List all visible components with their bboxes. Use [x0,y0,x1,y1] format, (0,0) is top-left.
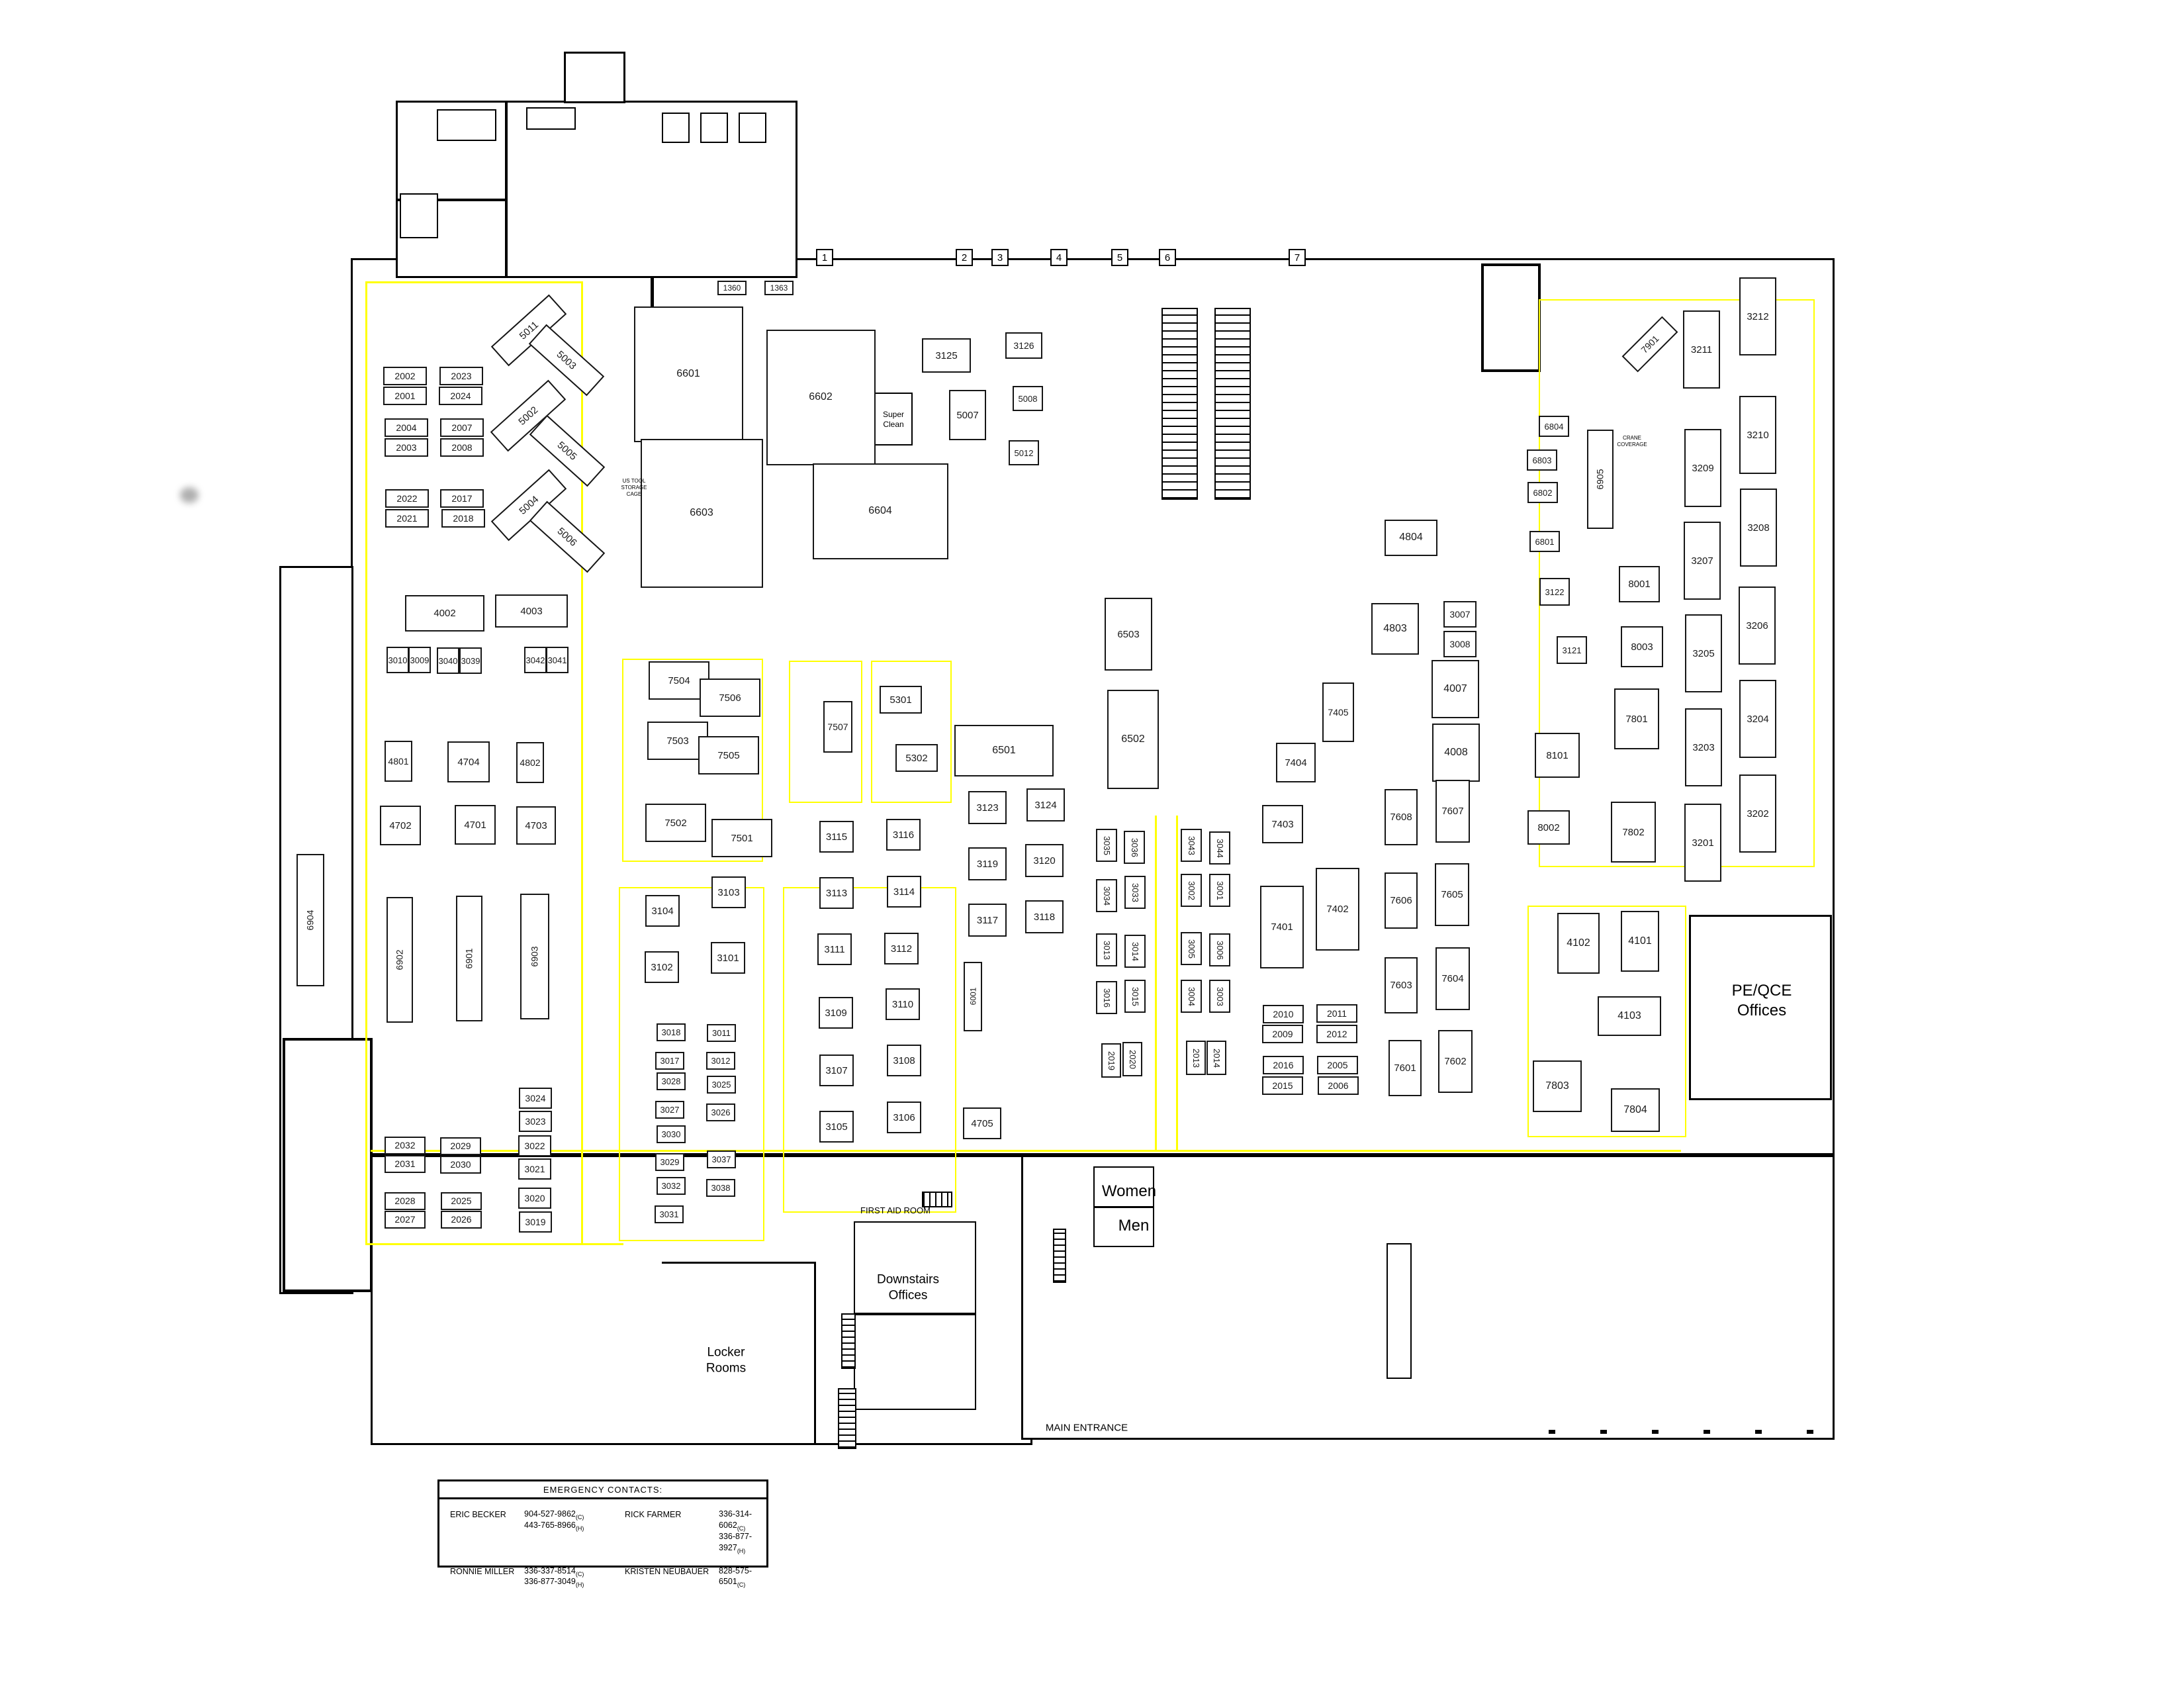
machine-2007: 2007 [440,418,484,437]
machine-3114: 3114 [887,876,921,908]
mezzanine-equipment [700,113,728,143]
aisle-line [1155,816,1157,1150]
machine-7505: 7505 [698,736,759,774]
machine-number: 4705 [971,1119,993,1129]
grid-column-3: 3 [991,249,1009,266]
machine-5301: 5301 [880,686,922,714]
grid-column-7: 7 [1289,249,1306,266]
machine-3204: 3204 [1739,680,1776,758]
machine-number: 3027 [660,1105,680,1114]
machine-number: 3110 [892,1000,913,1009]
machine-number: 5006 [556,526,579,547]
machine-number: 7901 [1639,334,1661,355]
machine-number: 8101 [1546,751,1568,761]
machine-2006: 2006 [1318,1076,1359,1095]
machine-number: 3209 [1692,463,1713,473]
machine-number: 3201 [1692,838,1713,848]
machine-number: 2017 [451,494,472,503]
machine-number: 3007 [1449,610,1470,619]
machine-number: 2028 [394,1196,415,1205]
machine-number: 3206 [1746,621,1768,631]
machine-6802: 6802 [1527,482,1558,503]
machine-3120: 3120 [1025,844,1064,877]
machine-4002: 4002 [405,595,484,632]
machine-number: 2002 [394,371,415,381]
machine-3019: 3019 [519,1211,552,1233]
emergency-contacts-table: ERIC BECKER904-527-9862(C)443-765-8966(H… [439,1499,766,1591]
machine-number: 3112 [891,944,912,954]
grid-column-number: 1 [822,252,827,263]
machine-number: 2022 [396,494,417,503]
wall-shipping-room [283,1038,373,1292]
machine-number: 5012 [1015,449,1034,457]
machine-number: 4007 [1443,684,1467,694]
machine-number: 3004 [1187,987,1196,1006]
machine-4003: 4003 [495,594,568,628]
machine-number: 5301 [889,695,911,705]
machine-number: 3109 [825,1008,846,1018]
machine-4007: 4007 [1432,660,1479,718]
machine-3206: 3206 [1739,586,1776,665]
machine-2028: 2028 [385,1192,426,1210]
storage-rack [1161,308,1198,500]
machine-3117: 3117 [968,904,1007,937]
machine-number: 7603 [1390,980,1412,990]
machine-number: 7401 [1271,922,1293,932]
machine-number: 3106 [893,1113,915,1123]
machine-3008: 3008 [1443,631,1477,657]
machine-3005: 3005 [1181,932,1202,965]
machine-number: 6802 [1533,489,1553,497]
grid-column-6: 6 [1159,249,1176,266]
machine-number: 3030 [662,1130,681,1139]
machine-3113: 3113 [819,877,854,909]
machine-number: 4003 [520,606,542,616]
machine-number: 2016 [1273,1060,1293,1070]
machine-3037: 3037 [707,1150,736,1168]
machine-7606: 7606 [1385,872,1418,929]
aisle-line [365,281,367,1244]
machine-number: 6804 [1545,422,1564,431]
machine-number: 7501 [731,833,752,843]
mezzanine-equipment [400,193,438,238]
machine-number: 3118 [1034,912,1055,922]
machine-2001: 2001 [383,387,427,405]
machine-number: 6604 [868,506,892,516]
machine-6501: 6501 [954,725,1054,776]
machine-2020: 2020 [1122,1042,1142,1076]
label-downstairs-offices: Downstairs Offices [877,1272,939,1303]
machine-3211: 3211 [1683,310,1720,389]
label-pe-qce-offices: PE/QCE Offices [1732,981,1792,1021]
machine-5008: 5008 [1013,386,1043,411]
machine-number: 3117 [977,915,998,925]
machine-2031: 2031 [385,1155,426,1173]
phone-type-tag: (H) [576,1525,584,1532]
machine-7608: 7608 [1385,789,1418,845]
phone-number: 828-575-6501 [719,1566,752,1587]
machine-3013: 3013 [1096,933,1117,966]
aisle-line [1176,816,1178,1150]
phone-number: 904-527-9862 [524,1509,576,1519]
contact-name: RONNIE MILLER [450,1566,524,1588]
machine-3015: 3015 [1124,980,1146,1013]
machine-number: 3033 [1131,883,1140,902]
machine-number: 3122 [1545,588,1565,596]
machine-3105: 3105 [819,1111,854,1143]
machine-6903: 6903 [520,894,549,1019]
machine-number: 6601 [676,369,700,379]
machine-6602: 6602 [766,330,876,465]
machine-3109: 3109 [819,997,853,1029]
machine-1363: 1363 [764,281,794,295]
downstairs-office-room [854,1314,976,1410]
machine-3041: 3041 [546,647,569,673]
machine-number: 7506 [719,693,741,703]
machine-number: 7605 [1441,890,1463,900]
machine-3004: 3004 [1181,980,1202,1013]
machine-number: 3011 [712,1029,731,1037]
aisle-line [365,281,581,283]
machine-number: 2030 [450,1160,471,1169]
machine-3043: 3043 [1181,829,1202,862]
phone-number: 336-314-6062 [719,1509,752,1530]
machine-number: 5003 [555,349,578,371]
machine-6804: 6804 [1539,416,1569,437]
machine-number: 7606 [1390,896,1412,906]
machine-number: 6803 [1533,456,1552,465]
machine-number: 3037 [712,1155,731,1164]
mezzanine-divider-wall [505,101,508,278]
machine-number: 7405 [1328,708,1348,717]
machine-number: 6502 [1121,734,1145,745]
machine-number: 3204 [1747,714,1768,724]
machine-number: 8003 [1631,642,1653,652]
machine-3006: 3006 [1209,933,1230,966]
machine-6502: 6502 [1107,690,1159,789]
machine-number: 3001 [1216,881,1224,900]
machine-number: 3031 [660,1210,679,1219]
machine-3106: 3106 [887,1102,921,1133]
machine-number: 2029 [450,1141,471,1150]
machine-number: 3203 [1692,743,1714,753]
machine-3031: 3031 [655,1205,684,1223]
machine-number: 3014 [1131,942,1140,961]
machine-number: 5007 [956,410,978,420]
machine-6904: 6904 [296,854,324,986]
machine-3101: 3101 [711,942,745,974]
machine-number: 3042 [526,656,545,665]
machine-3122: 3122 [1539,578,1570,606]
machine-number: 2023 [451,371,471,381]
aisle-line [365,1243,623,1245]
machine-6503: 6503 [1105,598,1152,671]
machine-number: 3044 [1216,839,1224,858]
machine-3007: 3007 [1443,601,1477,628]
machine-number: 2014 [1212,1049,1221,1068]
machine-number: 3208 [1747,523,1769,533]
machine-2010: 2010 [1263,1005,1304,1023]
phone-number: 336-337-8514 [524,1566,576,1575]
emergency-contacts-box: EMERGENCY CONTACTS: ERIC BECKER904-527-9… [437,1479,768,1568]
machine-number: 3015 [1131,987,1140,1006]
machine-number: 3012 [711,1056,731,1065]
machine-7401: 7401 [1260,886,1304,968]
machine-number: 6603 [690,508,713,518]
machine-number: 3008 [1449,639,1470,649]
machine-number: 5005 [556,440,579,461]
stairs [841,1313,856,1369]
machine-7605: 7605 [1435,863,1469,926]
machine-number: 6903 [530,946,539,966]
machine-number: 2031 [394,1159,415,1168]
machine-number: 7502 [664,818,686,828]
machine-number: 2007 [451,423,472,432]
machine-number: 3006 [1216,941,1224,960]
machine-7601: 7601 [1388,1040,1422,1096]
phone-number: 336-877-3927 [719,1532,752,1552]
machine-number: 7402 [1326,904,1348,914]
machine-number: 3114 [893,887,915,897]
machine-3022: 3022 [518,1135,551,1156]
machine-7803: 7803 [1533,1060,1582,1112]
machine-number: 2015 [1272,1081,1293,1090]
machine-3125: 3125 [922,338,971,373]
machine-number: 3035 [1103,836,1111,855]
machine-number: 3024 [525,1094,545,1103]
machine-4703: 4703 [516,806,556,845]
machine-4801: 4801 [385,741,412,782]
machine-number: 2004 [396,423,416,432]
machine-3011: 3011 [707,1024,736,1042]
machine-number: 8001 [1628,579,1650,589]
machine-3032: 3032 [657,1177,686,1195]
grid-column-number: 5 [1117,252,1122,263]
machine-7802: 7802 [1611,802,1656,863]
machine-number: 4101 [1628,936,1652,947]
phone-type-tag: (C) [737,1525,746,1532]
contact-name: ERIC BECKER [450,1509,524,1554]
machine-number: 3101 [717,953,739,963]
machine-number: 7802 [1622,827,1644,837]
grid-column-1: 1 [816,249,833,266]
machine-number: 3005 [1187,939,1196,959]
machine-4804: 4804 [1385,520,1437,556]
machine-number: 2013 [1192,1049,1201,1068]
machine-number: 2009 [1272,1029,1293,1039]
machine-number: 2006 [1328,1081,1348,1090]
machine-5302: 5302 [895,744,938,772]
storage-rack [1214,308,1251,500]
machine-6603: 6603 [641,439,763,588]
machine-number: 3043 [1187,836,1196,855]
aisle-zone [871,661,952,803]
machine-number: 3018 [662,1028,681,1037]
contact-name: KRISTEN NEUBAUER [625,1566,719,1588]
machine-number: 3020 [524,1194,545,1203]
grid-column-number: 2 [962,252,967,263]
machine-2002: 2002 [383,367,427,385]
machine-3026: 3026 [706,1103,735,1121]
phone-type-tag: (C) [737,1581,746,1588]
machine-3115: 3115 [819,821,854,853]
machine-number: 3207 [1691,556,1713,566]
machine-number: 2012 [1326,1029,1347,1039]
machine-number: 7602 [1444,1056,1466,1066]
machine-number: 3013 [1103,941,1111,960]
machine-number: 3211 [1691,345,1712,355]
machine-2027: 2027 [385,1211,426,1229]
machine-3035: 3035 [1096,829,1117,862]
contact-phones: 336-314-6062(C)336-877-3927(H) [719,1509,761,1554]
grid-column-5: 5 [1111,249,1128,266]
machine-number: 7403 [1271,820,1293,829]
aisle-line [371,1150,1681,1152]
machine-3002: 3002 [1181,874,1202,907]
entrance-counter [1387,1243,1412,1379]
label-us-tool-storage-cage: US TOOL STORAGE CAGE [621,478,647,498]
machine-number: 3210 [1747,430,1768,440]
machine-3116: 3116 [886,819,921,851]
machine-2029: 2029 [440,1137,481,1155]
machine-3209: 3209 [1684,429,1721,507]
machine-number: 2008 [451,443,472,452]
machine-number: 3034 [1103,886,1111,906]
machine-number: 7601 [1394,1063,1416,1073]
machine-3042: 3042 [524,647,547,673]
machine-number: 4703 [525,821,547,831]
machine-3210: 3210 [1739,396,1776,474]
machine-3016: 3016 [1096,981,1117,1014]
machine-number: 3103 [717,888,739,898]
contact-phones: 336-337-8514(C)336-877-3049(H) [524,1566,625,1588]
machine-2012: 2012 [1316,1025,1357,1043]
machine-3126: 3126 [1005,332,1042,359]
machine-number: 6001 [969,988,977,1006]
machine-number: 3019 [525,1217,545,1227]
machine-number: 4803 [1383,624,1407,634]
machine-6902: 6902 [387,897,413,1023]
machine-number: 3002 [1187,881,1196,900]
machine-number: 3041 [548,656,567,665]
machine-number: 3121 [1563,646,1582,655]
machine-3021: 3021 [518,1158,551,1180]
machine-4704: 4704 [447,741,490,782]
machine-7501: 7501 [711,819,772,857]
machine-6001: 6001 [964,962,982,1031]
machine-number: 2027 [394,1215,415,1224]
machine-number: 7607 [1441,806,1463,816]
machine-3201: 3201 [1684,804,1721,882]
phone-type-tag: (H) [576,1581,584,1588]
phone-type-tag: (C) [576,1571,584,1577]
machine-8003: 8003 [1621,626,1663,667]
machine-7506: 7506 [700,679,760,717]
mezzanine-equipment [662,113,690,143]
aisle-zone [783,887,956,1213]
machine-3104: 3104 [645,895,680,927]
machine-3010: 3010 [387,647,409,673]
machine-number: 3107 [825,1066,847,1076]
stairs [1053,1229,1066,1283]
machine-2005: 2005 [1317,1056,1358,1074]
machine-2008: 2008 [440,438,484,457]
machine-number: 3039 [461,657,480,665]
machine-6801: 6801 [1529,531,1560,552]
machine-4702: 4702 [380,806,421,845]
machine-number: 3025 [712,1080,731,1089]
machine-2032: 2032 [385,1137,426,1154]
machine-2030: 2030 [440,1156,481,1174]
machine-number: 8002 [1537,823,1559,833]
machine-5007: 5007 [949,390,986,440]
machine-number: 3036 [1130,838,1139,857]
machine-number: 6501 [992,745,1016,756]
machine-number: 6602 [809,392,833,402]
grid-column-4: 4 [1050,249,1068,266]
machine-number: 3126 [1013,341,1034,350]
machine-3033: 3033 [1124,876,1146,909]
machine-7405: 7405 [1322,682,1354,742]
machine-number: 3108 [893,1056,915,1066]
machine-3036: 3036 [1124,831,1145,864]
facility-floor-plan: 1234567 20022001200420032022202120232024… [0,0,2184,1688]
machine-7604: 7604 [1435,947,1470,1010]
machine-2025: 2025 [441,1192,482,1210]
label-main-entrance: MAIN ENTRANCE [1046,1423,1128,1435]
machine-2004: 2004 [385,418,428,437]
emergency-contacts-title: EMERGENCY CONTACTS: [439,1481,766,1499]
machine-8101: 8101 [1535,733,1580,778]
machine-3202: 3202 [1739,774,1776,853]
machine-3111: 3111 [817,933,852,965]
machine-number: 4002 [433,608,455,618]
locker-room-wall [814,1262,816,1445]
machine-number: 3029 [660,1158,680,1166]
machine-4701: 4701 [455,805,496,845]
machine-3040: 3040 [437,647,459,674]
machine-3017: 3017 [655,1052,684,1070]
machine-number: 7803 [1545,1081,1569,1092]
machine-number: 3212 [1747,312,1768,322]
grid-column-number: 6 [1165,252,1170,263]
machine-3207: 3207 [1684,522,1721,600]
machine-number: 3125 [935,351,957,361]
machine-2015: 2015 [1262,1076,1303,1095]
grid-column-number: 4 [1056,252,1062,263]
machine-3124: 3124 [1026,788,1065,821]
wall-dock-structure [1481,263,1541,372]
aisle-line [581,281,583,1244]
machine-4103: 4103 [1598,996,1661,1036]
machine-7607: 7607 [1435,780,1470,843]
machine-number: 2003 [396,443,416,452]
machine-2014: 2014 [1206,1041,1226,1075]
machine-3027: 3027 [655,1101,684,1119]
machine-8002: 8002 [1527,810,1570,845]
machine-number: 7608 [1390,812,1412,822]
mezzanine-equipment [437,109,496,141]
machine-number: 4103 [1617,1011,1641,1021]
machine-3025: 3025 [707,1076,736,1094]
machine-3112: 3112 [884,933,919,964]
machine-number: 2025 [451,1196,471,1205]
machine-2022: 2022 [385,489,429,508]
machine-number: 2024 [450,391,471,400]
machine-3038: 3038 [706,1179,735,1197]
machine-number: 3205 [1692,649,1714,659]
machine-number: 6801 [1535,538,1555,546]
